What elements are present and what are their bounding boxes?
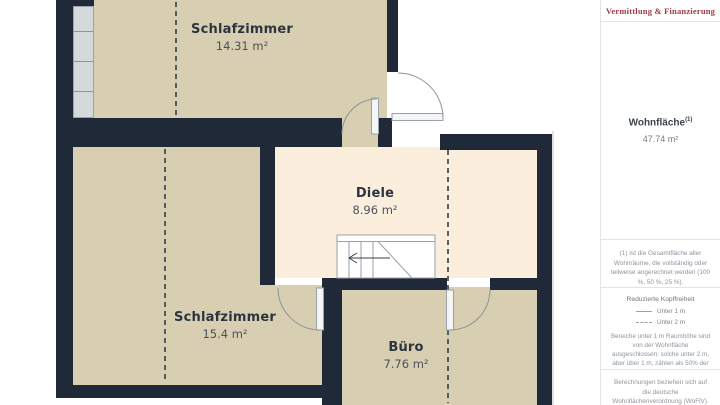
living-area-value: 47.74 m² <box>643 134 679 144</box>
legend-line-solid <box>636 311 652 312</box>
room-name: Diele <box>352 186 397 201</box>
label-bedroom-bottom: Schlafzimmer 15.4 m² <box>174 310 276 341</box>
floorplan-page: Schlafzimmer 14.31 m² Diele 8.96 m² Schl… <box>0 0 720 405</box>
living-area-superscript: (1) <box>685 117 692 123</box>
headroom-legend-title: Reduzierte Kopffreiheit <box>610 296 711 303</box>
room-area: 15.4 m² <box>174 327 276 341</box>
plan-linework <box>0 0 600 405</box>
label-office: Büro 7.76 m² <box>383 340 428 371</box>
door-arc-bedroom-bottom <box>278 288 320 330</box>
legend-row-under-1m: Unter 1 m <box>610 308 711 315</box>
disclaimer-text: Berechnungen beziehen sich auf die deuts… <box>601 370 720 405</box>
headroom-description: Bereiche unter 1 m Raumhöhe sind von der… <box>610 332 711 370</box>
brand-tagline: Vermittlung & Finanzierung <box>601 0 720 22</box>
door-leaf-bedroom-bottom <box>317 288 324 330</box>
room-area: 8.96 m² <box>352 203 397 217</box>
label-bedroom-top: Schlafzimmer 14.31 m² <box>191 22 293 53</box>
info-sidebar: Vermittlung & Finanzierung Wohnfläche(1)… <box>600 0 720 405</box>
legend-row-under-2m: Unter 2 m <box>610 319 711 326</box>
living-area-footnote: (1) Ist die Gesamtfläche aller Wohnräume… <box>601 240 720 288</box>
door-leaf-bedroom-top <box>372 98 379 134</box>
staircase-icon <box>337 235 435 278</box>
room-area: 14.31 m² <box>191 39 293 53</box>
door-leaf-corridor <box>392 114 443 121</box>
floor-plan: Schlafzimmer 14.31 m² Diele 8.96 m² Schl… <box>0 0 600 405</box>
living-area-label: Wohnfläche(1) <box>629 117 693 128</box>
living-area-section: Wohnfläche(1) 47.74 m² <box>601 22 720 240</box>
door-arc-office <box>450 290 490 330</box>
room-name: Schlafzimmer <box>174 310 276 325</box>
door-leaf-office <box>447 290 454 330</box>
legend-label: Unter 1 m <box>657 308 685 315</box>
room-area: 7.76 m² <box>383 357 428 371</box>
room-name: Büro <box>383 340 428 355</box>
legend-label: Unter 2 m <box>657 319 685 326</box>
label-hallway: Diele 8.96 m² <box>352 186 397 217</box>
room-name: Schlafzimmer <box>191 22 293 37</box>
headroom-legend: Reduzierte Kopffreiheit Unter 1 m Unter … <box>601 288 720 370</box>
legend-line-dashed <box>636 322 652 323</box>
door-arc-corridor <box>398 73 443 118</box>
